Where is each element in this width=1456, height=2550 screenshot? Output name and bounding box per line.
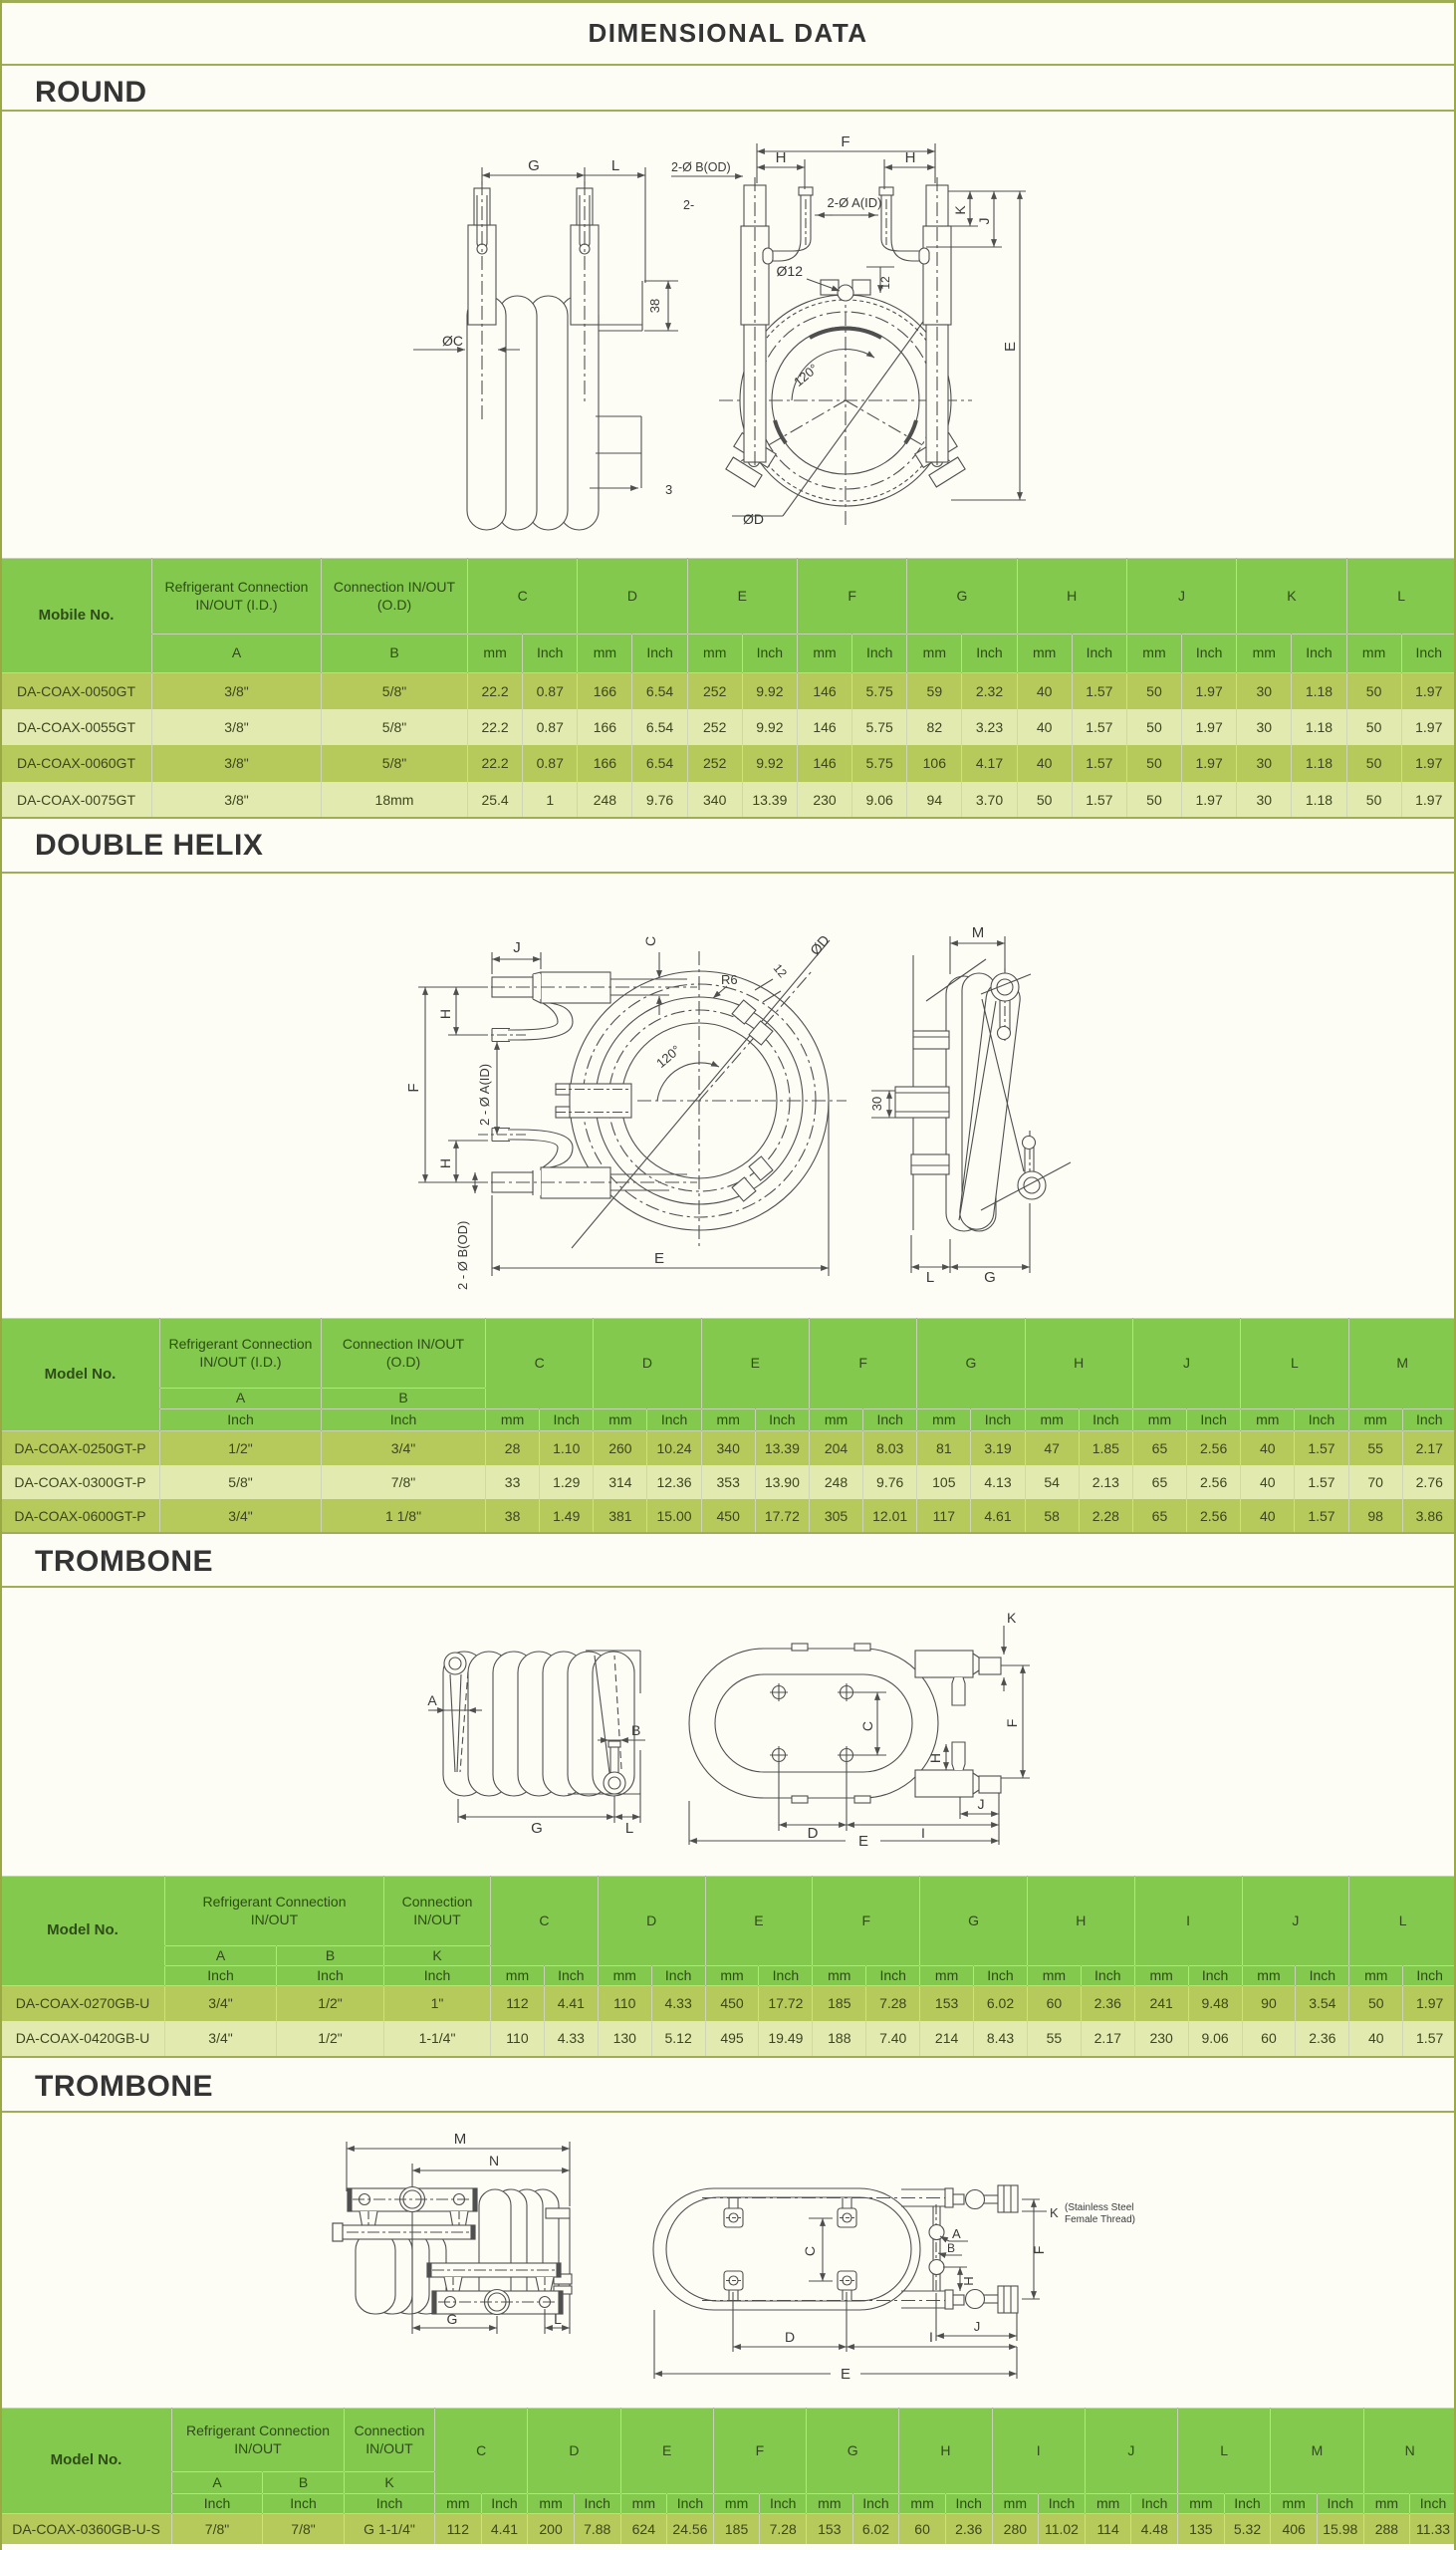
svg-text:C: C [859, 1721, 875, 1731]
svg-text:H: H [961, 2276, 976, 2285]
svg-text:12: 12 [771, 961, 791, 980]
svg-text:E: E [1002, 342, 1019, 352]
svg-text:ØD: ØD [743, 511, 764, 527]
svg-text:A: A [952, 2226, 961, 2241]
svg-text:F: F [1031, 2246, 1047, 2255]
svg-text:I: I [929, 2329, 933, 2345]
svg-text:ØD: ØD [807, 932, 833, 958]
svg-text:A: A [427, 1692, 437, 1708]
svg-text:R6: R6 [721, 972, 738, 987]
svg-text:38: 38 [647, 299, 662, 313]
svg-text:J: J [978, 1796, 985, 1812]
svg-text:M: M [454, 2131, 467, 2148]
svg-text:2 - Ø A(ID): 2 - Ø A(ID) [477, 1064, 492, 1126]
svg-text:2 - Ø B(OD): 2 - Ø B(OD) [455, 1221, 470, 1290]
svg-text:30: 30 [869, 1097, 884, 1111]
svg-text:J: J [974, 2319, 981, 2334]
svg-text:E: E [654, 1250, 664, 1267]
svg-text:3: 3 [665, 482, 672, 497]
svg-text:H: H [437, 1009, 453, 1019]
svg-text:120°: 120° [653, 1042, 683, 1071]
svg-text:M: M [972, 924, 985, 941]
svg-text:E: E [841, 2366, 850, 2383]
svg-text:G: G [528, 157, 540, 174]
svg-text:K: K [952, 205, 968, 215]
svg-text:B: B [631, 1722, 640, 1738]
svg-text:D: D [785, 2329, 795, 2345]
svg-text:C: C [642, 936, 658, 946]
svg-text:B: B [947, 2241, 955, 2255]
svg-text:G: G [531, 1820, 543, 1837]
svg-text:J: J [976, 218, 992, 225]
svg-text:H: H [776, 149, 787, 166]
svg-text:E: E [858, 1833, 868, 1850]
svg-text:ØC: ØC [442, 333, 463, 349]
svg-text:G: G [447, 2311, 458, 2327]
svg-text:H: H [927, 1753, 943, 1763]
svg-text:L: L [625, 1820, 633, 1837]
svg-text:G: G [984, 1269, 996, 1286]
svg-text:Female Thread): Female Thread) [1065, 2214, 1135, 2225]
svg-text:H: H [905, 149, 916, 166]
svg-text:F: F [841, 133, 849, 150]
svg-text:J: J [513, 939, 521, 956]
svg-text:L: L [926, 1269, 934, 1286]
svg-text:F: F [1004, 1719, 1020, 1728]
svg-text:2-Ø A(ID): 2-Ø A(ID) [828, 195, 882, 210]
svg-text:K: K [1007, 1610, 1017, 1626]
svg-text:H: H [437, 1158, 453, 1168]
svg-text:L: L [554, 2311, 562, 2327]
svg-text:I: I [921, 1825, 925, 1841]
svg-text:F: F [405, 1083, 422, 1092]
svg-text:12: 12 [878, 276, 892, 290]
svg-text:C: C [802, 2246, 818, 2256]
svg-text:2-: 2- [683, 198, 694, 212]
svg-text:L: L [611, 157, 619, 174]
svg-text:D: D [808, 1825, 819, 1842]
svg-text:2-Ø B(OD): 2-Ø B(OD) [671, 160, 731, 174]
svg-text:N: N [489, 2153, 499, 2168]
svg-text:K: K [1050, 2205, 1059, 2220]
svg-text:(Stainless Steel: (Stainless Steel [1065, 2202, 1133, 2213]
svg-text:Ø12: Ø12 [777, 263, 804, 279]
